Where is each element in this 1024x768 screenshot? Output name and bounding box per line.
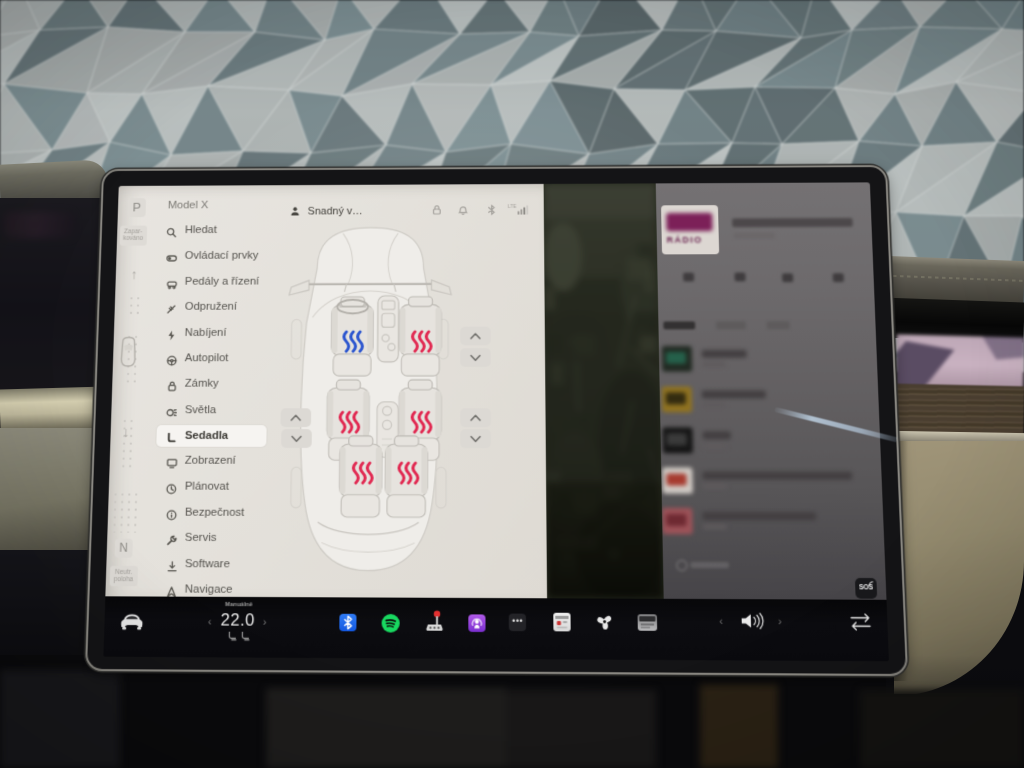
svg-text:LTE: LTE xyxy=(508,204,517,209)
